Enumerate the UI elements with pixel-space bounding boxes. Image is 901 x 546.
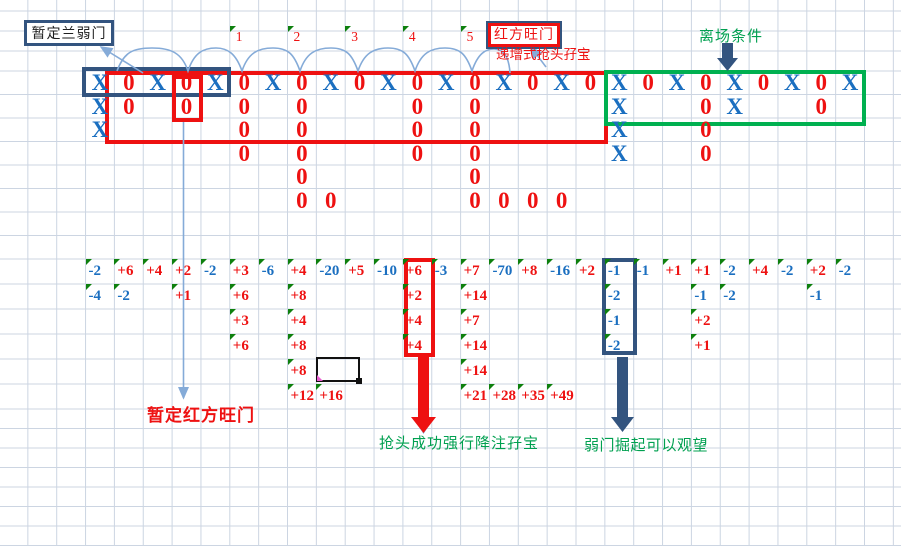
column-label[interactable]: 2 [288, 26, 317, 47]
number-cell[interactable]: +4 [288, 309, 317, 334]
number-cell[interactable]: -2 [201, 259, 230, 284]
cell-0[interactable]: 0 [691, 118, 720, 142]
cell-x[interactable]: X [720, 71, 749, 95]
column-label[interactable]: 3 [345, 26, 374, 47]
cell-0[interactable]: 0 [403, 142, 432, 166]
number-cell[interactable]: +4 [143, 259, 172, 284]
cell-0[interactable]: 0 [461, 189, 490, 213]
cell-0[interactable]: 0 [288, 165, 317, 189]
number-cell[interactable]: +8 [518, 259, 547, 284]
cell-x[interactable]: X [316, 71, 345, 95]
number-cell[interactable]: +4 [749, 259, 778, 284]
cell-x[interactable]: X [86, 71, 115, 95]
red-strong-callout: 红方旺门 [486, 21, 562, 49]
cell-0[interactable]: 0 [230, 142, 259, 166]
number-cell[interactable]: -2 [86, 259, 115, 284]
exit-condition-label: 离场条件 [699, 28, 763, 45]
number-cell[interactable]: +1 [691, 334, 720, 359]
number-cell[interactable]: +8 [288, 284, 317, 309]
cell-x[interactable]: X [374, 71, 403, 95]
cell-0[interactable]: 0 [230, 71, 259, 95]
number-cell[interactable]: +2 [576, 259, 605, 284]
cell-0[interactable]: 0 [403, 118, 432, 142]
number-cell[interactable]: +4 [403, 309, 432, 334]
cell-x[interactable]: X [605, 71, 634, 95]
number-cell[interactable]: +7 [461, 259, 490, 284]
cell-x[interactable]: X [86, 95, 115, 119]
number-cell[interactable]: +2 [691, 309, 720, 334]
tentative-weak-label: 暂定兰弱门 [32, 23, 107, 43]
number-cell[interactable]: +4 [288, 259, 317, 284]
number-cell[interactable]: +49 [547, 384, 576, 409]
cell-0[interactable]: 0 [114, 71, 143, 95]
number-cell[interactable]: -1 [691, 284, 720, 309]
smart-tag-icon [317, 375, 323, 381]
cell-x[interactable]: X [778, 71, 807, 95]
number-cell[interactable]: +6 [403, 259, 432, 284]
cell-0[interactable]: 0 [288, 95, 317, 119]
cell-0[interactable]: 0 [489, 189, 518, 213]
cell-x[interactable]: X [259, 71, 288, 95]
cell-0[interactable]: 0 [461, 118, 490, 142]
number-cell[interactable]: -10 [374, 259, 403, 284]
number-cell[interactable]: +14 [461, 284, 490, 309]
spreadsheet: X0X0X0X0X0X0X0X0X0X000000X00000000000000… [0, 0, 901, 546]
cell-0[interactable]: 0 [316, 189, 345, 213]
cell-0[interactable]: 0 [114, 95, 143, 119]
number-cell[interactable]: -20 [316, 259, 345, 284]
number-cell[interactable]: +14 [461, 359, 490, 384]
number-cell[interactable]: +12 [288, 384, 317, 409]
cell-x[interactable]: X [663, 71, 692, 95]
fill-handle-icon[interactable] [356, 378, 362, 384]
number-cell[interactable]: +6 [114, 259, 143, 284]
blue-tip-under-red-arrow [417, 424, 430, 434]
cell-0[interactable]: 0 [403, 95, 432, 119]
number-cell[interactable]: +8 [288, 334, 317, 359]
cell-x[interactable]: X [143, 71, 172, 95]
cell-0[interactable]: 0 [807, 95, 836, 119]
cell-x[interactable]: X [605, 142, 634, 166]
red-strong-callout-inner: 红方旺门 [488, 23, 560, 47]
cell-0[interactable]: 0 [230, 118, 259, 142]
cell-0[interactable]: 0 [749, 71, 778, 95]
cell-0[interactable]: 0 [547, 189, 576, 213]
number-cell[interactable]: -1 [605, 259, 634, 284]
number-cell[interactable]: -70 [489, 259, 518, 284]
cell-x[interactable]: X [720, 95, 749, 119]
red-strong-label: 红方旺门 [494, 26, 554, 42]
column-label[interactable]: 1 [230, 26, 259, 47]
number-cell[interactable]: +2 [807, 259, 836, 284]
number-cell[interactable]: +1 [691, 259, 720, 284]
cell-0[interactable]: 0 [461, 95, 490, 119]
number-cell[interactable]: -2 [778, 259, 807, 284]
cell-x[interactable]: X [489, 71, 518, 95]
cell-0[interactable]: 0 [518, 71, 547, 95]
number-cell[interactable]: +4 [403, 334, 432, 359]
number-cell[interactable]: +8 [288, 359, 317, 384]
cell-0[interactable]: 0 [288, 118, 317, 142]
cell-0[interactable]: 0 [288, 71, 317, 95]
number-cell[interactable]: -4 [86, 284, 115, 309]
cell-0[interactable]: 0 [461, 71, 490, 95]
tentative-red-label: 暂定红方旺门 [147, 406, 255, 426]
weak-rise-note-label: 弱门掘起可以观望 [584, 437, 708, 454]
cell-0[interactable]: 0 [288, 142, 317, 166]
cell-0[interactable]: 0 [461, 165, 490, 189]
number-cell[interactable]: +6 [230, 284, 259, 309]
navy-block-arrow-icon [611, 357, 634, 432]
number-cell[interactable]: +3 [230, 309, 259, 334]
number-cell[interactable]: -2 [720, 259, 749, 284]
number-cell[interactable]: -2 [605, 284, 634, 309]
cell-0[interactable]: 0 [691, 142, 720, 166]
cell-0[interactable]: 0 [230, 95, 259, 119]
number-cell[interactable]: -1 [634, 259, 663, 284]
number-cell[interactable]: +16 [316, 384, 345, 409]
number-cell[interactable]: +21 [461, 384, 490, 409]
number-cell[interactable]: +14 [461, 334, 490, 359]
number-cell[interactable]: -1 [605, 309, 634, 334]
number-cell[interactable]: +5 [345, 259, 374, 284]
cell-0[interactable]: 0 [807, 71, 836, 95]
cell-0[interactable]: 0 [691, 71, 720, 95]
number-cell[interactable]: +35 [518, 384, 547, 409]
number-cell[interactable]: -3 [432, 259, 461, 284]
number-cell[interactable]: -1 [807, 284, 836, 309]
number-cell[interactable]: -2 [605, 334, 634, 359]
cell-x[interactable]: X [547, 71, 576, 95]
cell-selection-box[interactable] [316, 357, 360, 382]
cell-0[interactable]: 0 [403, 71, 432, 95]
number-cell[interactable]: -2 [114, 284, 143, 309]
cell-0[interactable]: 0 [691, 95, 720, 119]
number-cell[interactable]: +6 [230, 334, 259, 359]
column-label[interactable]: 4 [403, 26, 432, 47]
cell-0[interactable]: 0 [518, 189, 547, 213]
cell-0[interactable]: 0 [345, 71, 374, 95]
number-cell[interactable]: +2 [403, 284, 432, 309]
cell-0[interactable]: 0 [288, 189, 317, 213]
cell-0[interactable]: 0 [576, 71, 605, 95]
number-cell[interactable]: +28 [489, 384, 518, 409]
number-cell[interactable]: -6 [259, 259, 288, 284]
number-cell[interactable]: -16 [547, 259, 576, 284]
cell-0[interactable]: 0 [634, 71, 663, 95]
grab-head-note-label: 抢头成功强行降注孖宝 [379, 435, 539, 452]
cell-x[interactable]: X [605, 118, 634, 142]
incremental-note-label: 递增式抢头孖宝 [496, 47, 591, 63]
number-cell[interactable]: -2 [720, 284, 749, 309]
number-cell[interactable]: +7 [461, 309, 490, 334]
cell-0[interactable]: 0 [461, 142, 490, 166]
red-single-column-box [172, 75, 203, 122]
tentative-weak-callout: 暂定兰弱门 [24, 20, 114, 46]
cell-x[interactable]: X [836, 71, 865, 95]
number-cell[interactable]: +3 [230, 259, 259, 284]
cell-x[interactable]: X [86, 118, 115, 142]
cell-x[interactable]: X [432, 71, 461, 95]
number-cell[interactable]: +2 [172, 259, 201, 284]
number-cell[interactable]: +1 [663, 259, 692, 284]
number-cell[interactable]: +1 [172, 284, 201, 309]
cell-x[interactable]: X [605, 95, 634, 119]
number-cell[interactable]: -2 [836, 259, 865, 284]
cell-x[interactable]: X [201, 71, 230, 95]
red-block-arrow-icon [411, 357, 436, 433]
exit-block-arrow-icon [717, 43, 738, 71]
